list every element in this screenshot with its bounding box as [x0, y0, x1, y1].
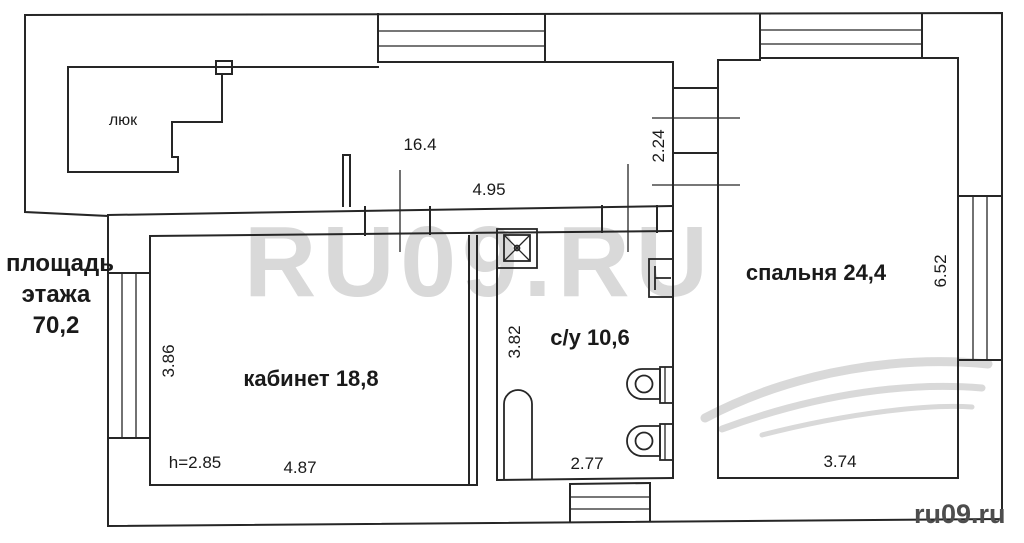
ceiling-height: h=2.85 — [169, 453, 221, 473]
office-walls — [150, 236, 477, 485]
window-top-left — [378, 14, 545, 62]
window-bottom — [570, 483, 650, 521]
dim-hall-area: 16.4 — [403, 135, 436, 155]
hall-walls — [108, 62, 672, 236]
watermark-corner: ru09.ru — [914, 499, 1006, 530]
room-label-hatch: люк — [109, 112, 137, 130]
floor-plan: RU09.RU — [0, 0, 1024, 543]
watermark-swoosh — [705, 362, 988, 435]
room-label-bedroom: спальня 24,4 — [746, 260, 886, 286]
dim-bedroom-width: 3.74 — [823, 452, 856, 472]
shower-tray-icon — [497, 229, 537, 268]
dim-bedroom-depth: 6.52 — [931, 254, 951, 287]
toilet-icon — [627, 367, 673, 403]
dim-bath-width: 2.77 — [570, 454, 603, 474]
window-left — [108, 273, 150, 438]
sink-icon — [649, 259, 673, 297]
window-top-right — [760, 14, 922, 58]
floor-area-line: этажа — [6, 279, 106, 310]
dim-office-width: 4.87 — [283, 458, 316, 478]
window-right — [958, 196, 1002, 360]
dim-bath-depth: 3.82 — [505, 325, 525, 358]
door-arc — [504, 390, 532, 480]
room-label-bathroom: с/у 10,6 — [550, 325, 630, 351]
dim-office-depth: 3.86 — [159, 344, 179, 377]
floor-area-note: площадь этажа 70,2 — [6, 248, 106, 341]
dim-hall-width: 4.95 — [472, 180, 505, 200]
floor-area-line: площадь — [6, 248, 106, 279]
room-label-office: кабинет 18,8 — [243, 366, 378, 392]
toilet-icon — [627, 424, 673, 460]
floor-area-line: 70,2 — [6, 310, 106, 341]
dim-corridor: 2.24 — [649, 129, 669, 162]
